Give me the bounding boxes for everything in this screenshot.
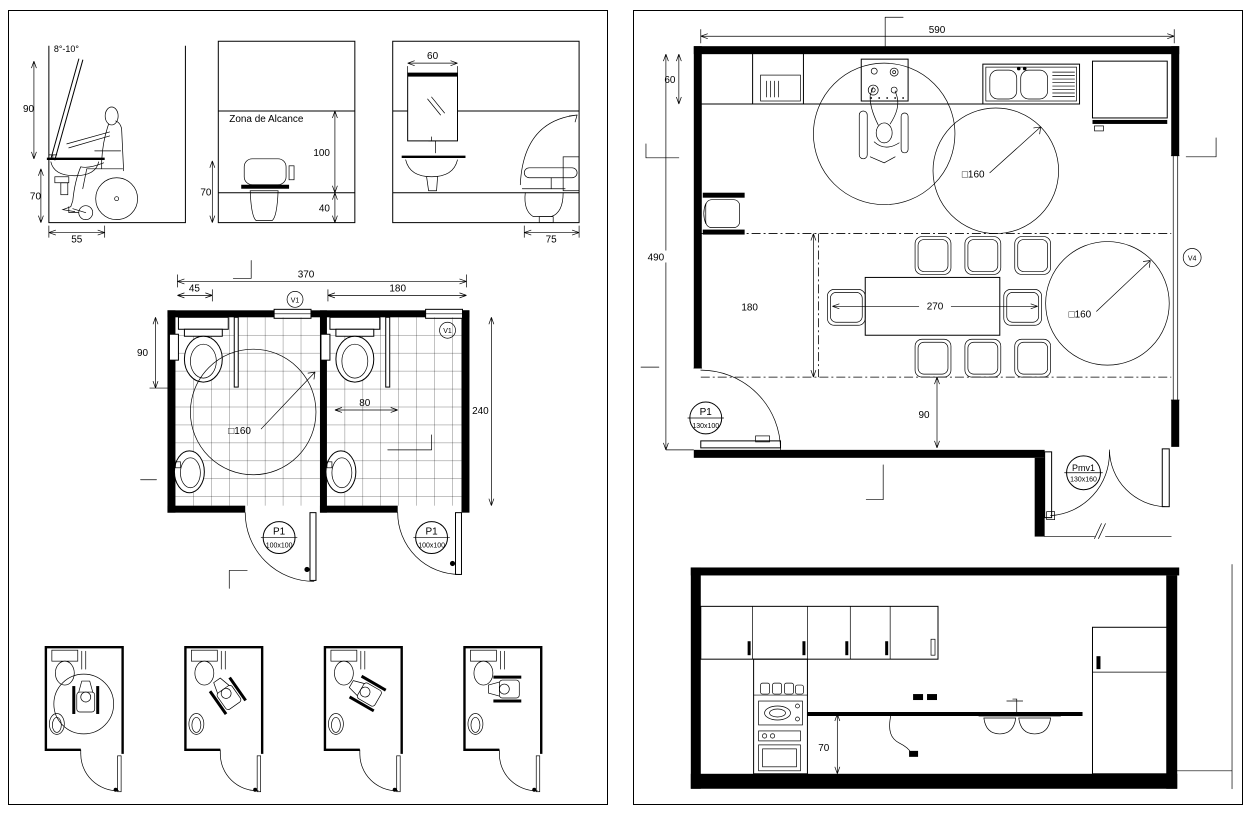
tag-window-v1-a: V1 — [291, 297, 300, 304]
sink-elevation — [979, 699, 1061, 734]
floor-extension-line — [1177, 564, 1232, 788]
dim-plan-overall: 370 — [298, 269, 315, 280]
toilet-front — [241, 159, 294, 221]
maneuvering-room-4 — [464, 647, 541, 792]
dim-counter-height: 70 — [818, 743, 830, 754]
kitchen-plan: 590 V4 60 490 — [641, 17, 1216, 538]
plan-accessible-toilets: 370 45 180 90 240 V1 V1 — [137, 260, 494, 588]
dim-aisle-width: 90 — [919, 410, 931, 421]
dim-wc-axis: 90 — [137, 348, 149, 359]
tall-unit-oven — [754, 659, 808, 774]
dim-basin-depth: 55 — [71, 235, 83, 246]
sheet-bathroom-details: 8°-10° 90 70 55 Zona de Alcance — [8, 10, 608, 805]
maneuvering-room-3 — [325, 647, 402, 792]
label-turning-circle-sink: □160 — [962, 170, 985, 181]
hose — [890, 714, 918, 757]
wheelchair-user-figure — [63, 107, 138, 220]
toilet-side — [522, 157, 579, 223]
tag-p1-left: P1 — [273, 527, 286, 538]
tag-window-v1-b: V1 — [443, 328, 452, 335]
turning-circle-dining — [1046, 242, 1170, 366]
dim-side-clearance: 80 — [359, 398, 371, 409]
dim-basin-height: 70 — [30, 192, 42, 203]
sheet-kitchen-details: 590 V4 60 490 — [633, 10, 1243, 805]
tag-p1-left-size: 100x100 — [266, 543, 293, 550]
dim-mirror-angle: 8°-10° — [54, 44, 80, 54]
double-door-pmv1 — [1045, 449, 1172, 539]
tag-pmv1-size: 130x160 — [1070, 477, 1097, 484]
outlet-2 — [927, 694, 937, 700]
kitchen-elevation: 70 — [691, 564, 1232, 788]
dim-toilet-height: 70 — [200, 188, 212, 199]
wall-basin — [402, 137, 466, 191]
basin-plan-right — [326, 451, 356, 493]
basin-plan-left — [174, 451, 204, 493]
tag-p1: P1 — [700, 407, 713, 418]
section-flag — [885, 17, 903, 46]
maneuvering-diagrams — [46, 647, 541, 792]
dim-mirror-height: 90 — [23, 104, 35, 115]
dim-kitchen-depth: 490 — [648, 252, 665, 263]
bathroom-details-drawing: 8°-10° 90 70 55 Zona de Alcance — [9, 11, 607, 804]
dim-kitchen-width: 590 — [929, 25, 946, 36]
label-turning-circle-dining: □160 — [1069, 309, 1092, 320]
dim-room-depth: 240 — [472, 406, 489, 417]
window-v4 — [1171, 156, 1179, 400]
outlet-1 — [913, 694, 923, 700]
dim-right-width: 180 — [389, 283, 406, 294]
armchair — [703, 193, 745, 235]
tag-p1-size: 130x100 — [692, 423, 719, 430]
elevation-mirror-basin: 60 75 — [393, 41, 579, 245]
kitchen-details-drawing: 590 V4 60 490 — [634, 11, 1242, 804]
tag-p1-right: P1 — [425, 527, 438, 538]
tilted-mirror — [51, 59, 83, 160]
tag-window-v4: V4 — [1188, 255, 1197, 262]
counter-top — [701, 54, 983, 104]
mirror — [408, 73, 458, 141]
door-tag-p1: P1 130x100 — [688, 402, 724, 434]
dim-lower-reach: 40 — [319, 204, 331, 215]
toilet-plan-left — [169, 317, 238, 387]
door-tag-pmv1: Pmv1 130x160 — [1065, 456, 1103, 490]
dim-left-offset: 45 — [189, 283, 201, 294]
maneuvering-room-1 — [46, 647, 123, 792]
maneuvering-room-2 — [185, 647, 262, 792]
elevation-reach-zone: Zona de Alcance 70 100 40 — [200, 41, 354, 222]
label-turning-circle: □160 — [228, 426, 251, 437]
toilet-plan-right — [321, 317, 390, 387]
double-sink-plan — [983, 64, 1080, 104]
fridge-elevation — [1092, 627, 1169, 774]
door-swing-arc — [520, 115, 577, 185]
small-appliance — [761, 75, 801, 101]
fridge-plan — [1092, 61, 1167, 131]
tag-pmv1: Pmv1 — [1072, 463, 1095, 473]
door-tag-left: P1 100x100 — [261, 522, 297, 554]
wall-cabinets — [701, 606, 938, 659]
dim-dining-depth: 180 — [741, 302, 758, 313]
label-reach-zone: Zona de Alcance — [229, 114, 304, 125]
dim-table-length: 270 — [927, 301, 944, 312]
elevation-basin-user: 8°-10° 90 70 55 — [23, 44, 185, 245]
threshold-break — [1045, 524, 1172, 539]
tag-p1-right-size: 100x100 — [418, 543, 445, 550]
dim-upper-reach: 100 — [313, 148, 330, 159]
door-tag-right: P1 100x100 — [414, 522, 450, 554]
dim-mirror-width: 60 — [427, 51, 439, 62]
section-marks — [141, 260, 252, 588]
dim-wc-depth: 75 — [546, 235, 558, 246]
